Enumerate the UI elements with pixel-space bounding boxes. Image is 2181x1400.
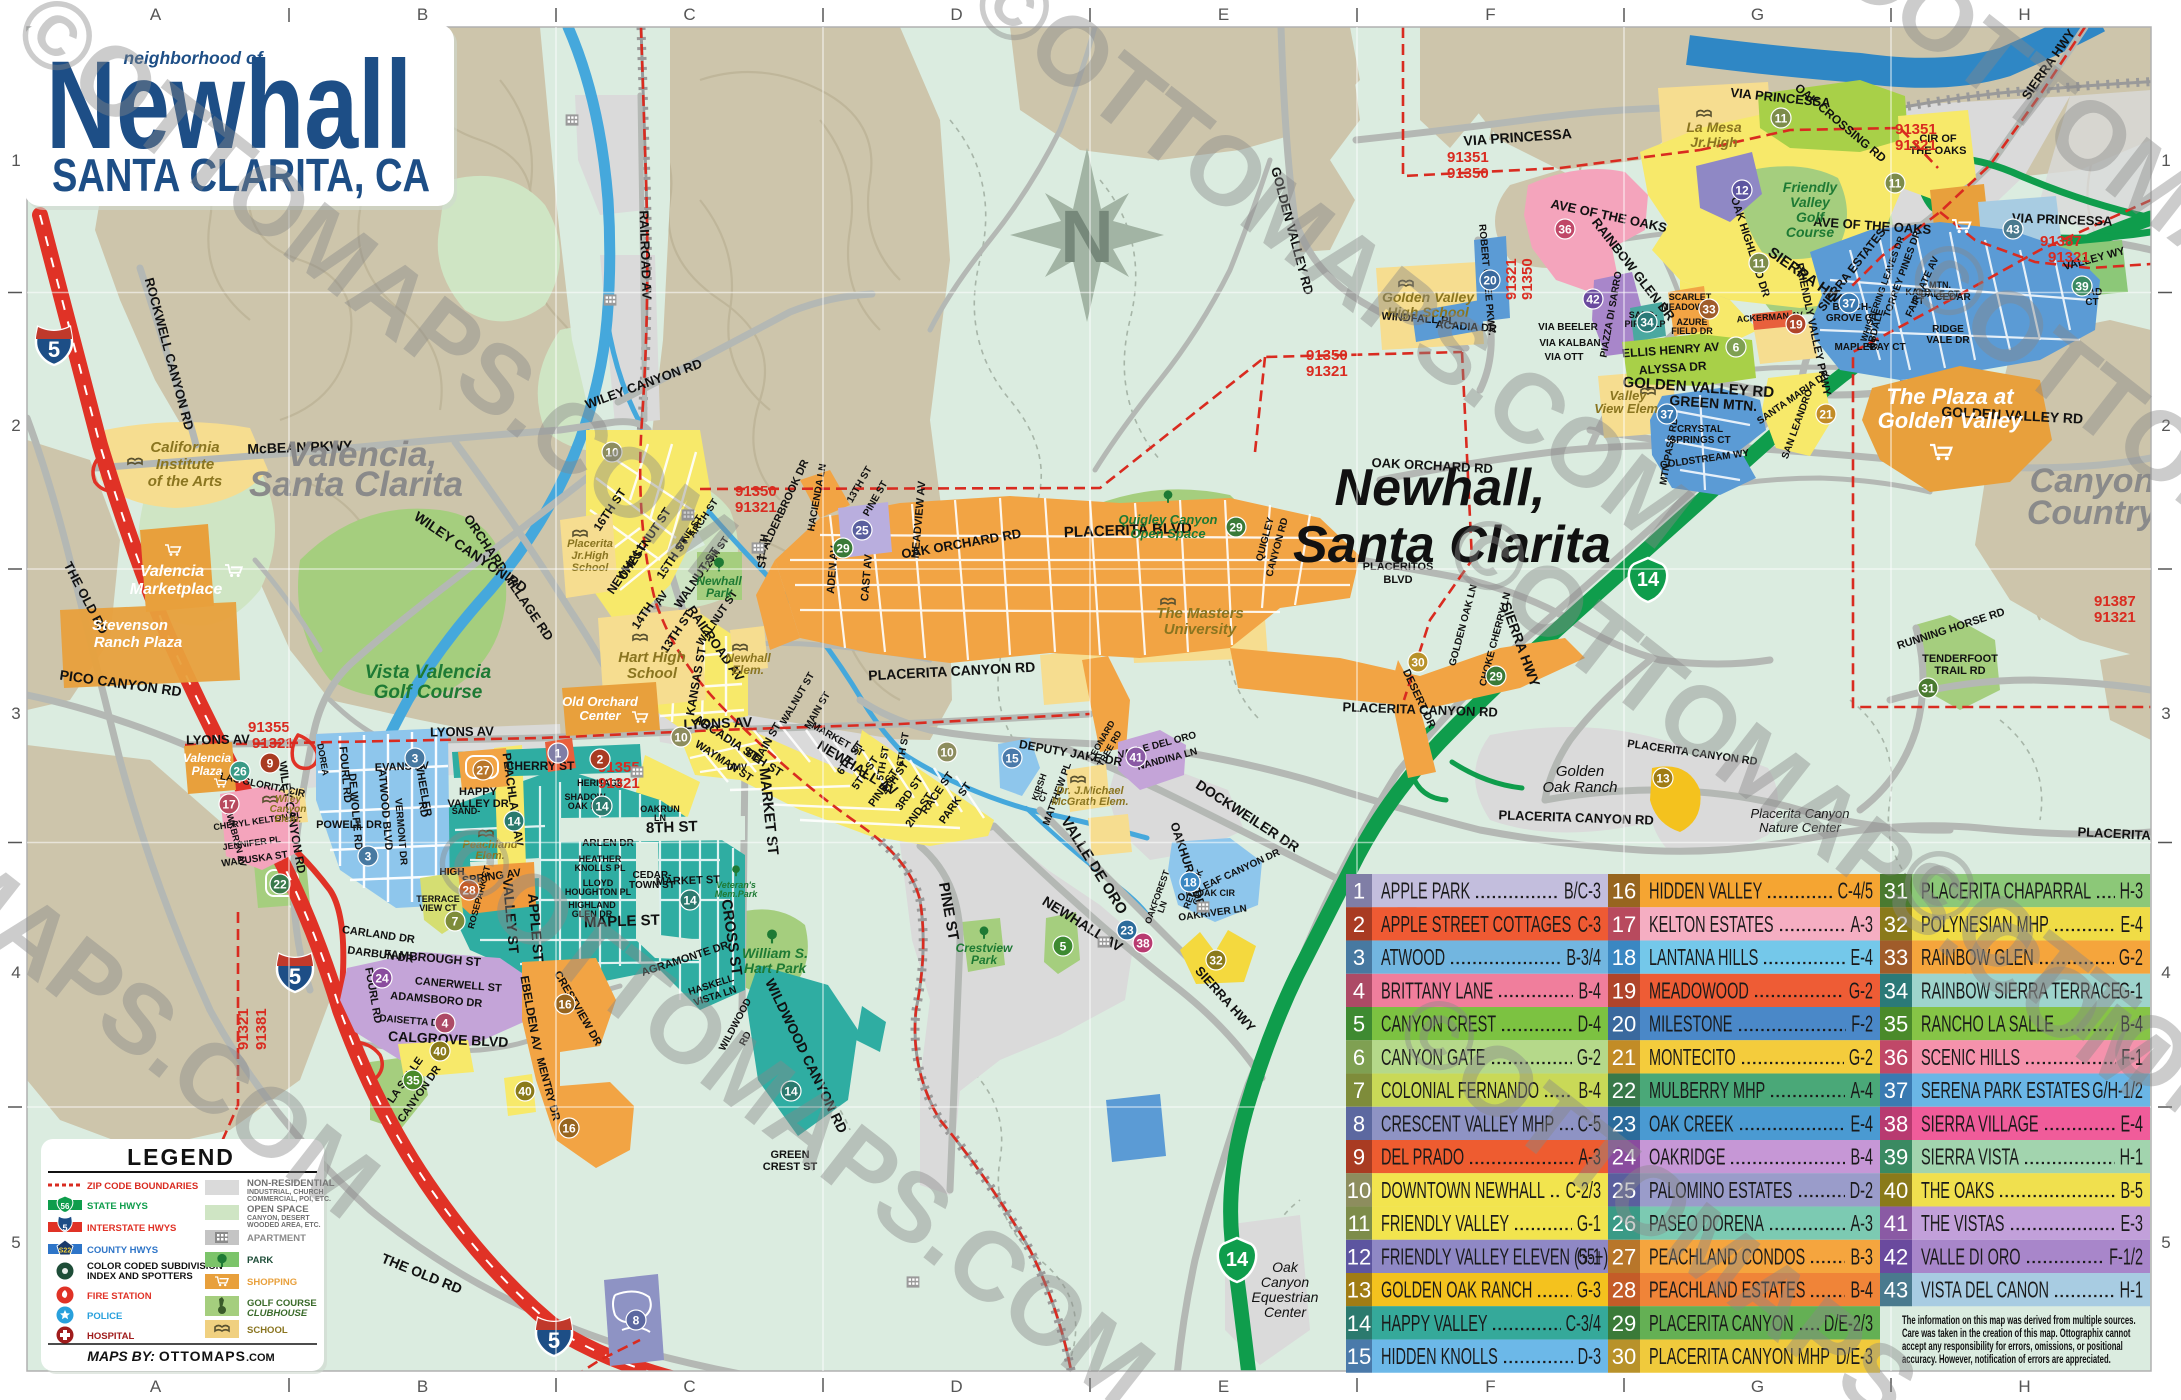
svg-text:accept any responsibility for: accept any responsibility for errors, om…: [1902, 1340, 2123, 1353]
svg-text:Quigley Canyon: Quigley Canyon: [1119, 512, 1218, 527]
svg-text:OAK CREEK: OAK CREEK: [1649, 1112, 1734, 1137]
svg-text:La Mesa: La Mesa: [1686, 119, 1741, 135]
svg-text:Old Orchard: Old Orchard: [562, 694, 639, 709]
svg-text:3: 3: [412, 752, 419, 766]
svg-text:Golf Course: Golf Course: [374, 682, 483, 703]
svg-text:TRAIL RD: TRAIL RD: [1934, 665, 1985, 677]
svg-text:INDEX AND SPOTTERS: INDEX AND SPOTTERS: [87, 1271, 193, 1282]
svg-text:37: 37: [1842, 297, 1856, 311]
svg-text:LYONS AV: LYONS AV: [186, 731, 250, 747]
svg-text:40: 40: [518, 1085, 532, 1099]
svg-text:9: 9: [1353, 1145, 1365, 1170]
svg-text:D-3: D-3: [1578, 1345, 1601, 1370]
svg-text:FIELD DR: FIELD DR: [1671, 326, 1713, 336]
svg-text:of the Arts: of the Arts: [148, 473, 222, 490]
svg-text:10: 10: [1347, 1178, 1371, 1203]
svg-text:91321: 91321: [1306, 363, 1348, 380]
svg-text:42: 42: [1884, 1244, 1908, 1269]
svg-text:36: 36: [1558, 223, 1572, 237]
svg-text:29: 29: [836, 542, 850, 556]
svg-text:91321: 91321: [1895, 137, 1937, 154]
svg-text:27: 27: [476, 764, 490, 778]
svg-text:40: 40: [433, 1045, 447, 1059]
svg-text:25: 25: [855, 524, 869, 538]
svg-text:G-2: G-2: [1849, 1046, 1873, 1071]
svg-text:THE OAKS: THE OAKS: [1921, 1179, 1994, 1204]
svg-text:The Plaza at: The Plaza at: [1886, 384, 2015, 409]
svg-text:3: 3: [2161, 704, 2170, 723]
svg-text:Jr.High: Jr.High: [1690, 134, 1737, 150]
svg-text:HAPPY: HAPPY: [459, 786, 498, 798]
svg-text:Ranch Plaza: Ranch Plaza: [94, 634, 182, 651]
svg-text:Valencia: Valencia: [183, 751, 232, 765]
svg-text:TENDERFOOT: TENDERFOOT: [1922, 653, 1998, 665]
svg-text:Vista Valencia: Vista Valencia: [365, 662, 492, 683]
svg-text:SPRINGS CT: SPRINGS CT: [1669, 435, 1730, 446]
svg-text:10: 10: [940, 746, 954, 760]
svg-text:91321: 91321: [2094, 609, 2136, 626]
svg-text:VIA BEELER: VIA BEELER: [1538, 322, 1598, 333]
svg-text:13: 13: [1656, 772, 1670, 786]
svg-text:University: University: [1164, 621, 1237, 638]
svg-text:5: 5: [1353, 1012, 1365, 1037]
svg-text:32: 32: [1209, 954, 1223, 968]
svg-text:B-4: B-4: [1850, 1145, 1873, 1170]
svg-text:2: 2: [597, 753, 604, 767]
svg-text:LN: LN: [654, 813, 666, 823]
svg-text:MONTECITO: MONTECITO: [1649, 1046, 1736, 1071]
svg-text:B-3: B-3: [1850, 1245, 1873, 1270]
svg-text:Canyon: Canyon: [1261, 1274, 1309, 1290]
svg-text:G: G: [1751, 5, 1764, 24]
svg-text:2: 2: [1353, 912, 1365, 937]
svg-text:Friendly: Friendly: [1783, 179, 1839, 195]
svg-text:4: 4: [2161, 963, 2170, 982]
svg-text:California: California: [150, 439, 219, 456]
svg-text:FRIENDLY VALLEY ELEVEN (55+): FRIENDLY VALLEY ELEVEN (55+): [1381, 1245, 1608, 1270]
svg-text:91350: 91350: [1447, 165, 1489, 182]
svg-text:20: 20: [1483, 274, 1497, 288]
svg-text:13: 13: [1347, 1278, 1371, 1303]
svg-text:POLICE: POLICE: [87, 1311, 122, 1322]
svg-text:5: 5: [2161, 1233, 2170, 1252]
svg-text:STATE HWYS: STATE HWYS: [87, 1201, 148, 1212]
svg-text:3: 3: [365, 850, 372, 864]
svg-text:William S.: William S.: [742, 945, 808, 961]
svg-text:Course: Course: [1786, 224, 1834, 240]
svg-text:F-2: F-2: [1851, 1012, 1873, 1037]
svg-text:7: 7: [1353, 1078, 1365, 1103]
svg-text:33: 33: [1702, 303, 1716, 317]
svg-text:43: 43: [1884, 1278, 1908, 1303]
svg-text:91387: 91387: [2094, 593, 2136, 610]
svg-text:Elem.: Elem.: [275, 814, 302, 825]
svg-text:HIDDEN KNOLLS: HIDDEN KNOLLS: [1381, 1345, 1498, 1370]
svg-text:1: 1: [11, 151, 20, 170]
svg-text:SIERRA VILLAGE: SIERRA VILLAGE: [1921, 1112, 2039, 1137]
svg-text:N: N: [1060, 195, 1113, 278]
svg-text:5: 5: [11, 1233, 20, 1252]
svg-text:14: 14: [683, 894, 697, 908]
svg-text:91321: 91321: [252, 735, 294, 752]
svg-text:TOWN ST: TOWN ST: [629, 880, 675, 891]
svg-text:School: School: [627, 665, 678, 682]
svg-text:5: 5: [48, 337, 60, 362]
svg-text:30: 30: [1411, 656, 1425, 670]
svg-text:Oak: Oak: [1272, 1259, 1299, 1275]
svg-text:34: 34: [1640, 316, 1654, 330]
svg-text:APPLE PARK: APPLE PARK: [1381, 879, 1470, 904]
svg-text:3: 3: [1353, 945, 1365, 970]
svg-text:Country: Country: [2027, 494, 2159, 532]
svg-text:LYONS AV: LYONS AV: [430, 723, 494, 739]
svg-text:Oak Ranch: Oak Ranch: [1542, 779, 1617, 796]
svg-text:16: 16: [1612, 879, 1636, 904]
svg-text:Valley: Valley: [1790, 194, 1831, 210]
svg-text:Marketplace: Marketplace: [130, 581, 223, 598]
svg-text:12: 12: [1347, 1244, 1371, 1269]
svg-text:38: 38: [1884, 1111, 1908, 1136]
svg-text:School: School: [572, 562, 610, 574]
svg-text:5: 5: [1060, 940, 1067, 954]
svg-text:21: 21: [1819, 408, 1833, 422]
svg-text:MULBERRY MHP: MULBERRY MHP: [1649, 1079, 1765, 1104]
svg-text:S22: S22: [59, 1248, 72, 1255]
svg-text:VISTA DEL CANON: VISTA DEL CANON: [1921, 1278, 2049, 1303]
svg-text:2: 2: [11, 416, 20, 435]
svg-text:A-3: A-3: [1850, 1212, 1873, 1237]
svg-text:39: 39: [2075, 280, 2089, 294]
svg-text:B-5: B-5: [2120, 1179, 2143, 1204]
svg-text:WOODED AREA, ETC.: WOODED AREA, ETC.: [247, 1222, 321, 1229]
svg-text:11: 11: [1775, 112, 1788, 126]
svg-text:14: 14: [1637, 569, 1660, 591]
svg-text:26: 26: [233, 765, 247, 779]
svg-text:FRIENDLY VALLEY: FRIENDLY VALLEY: [1381, 1212, 1509, 1237]
svg-text:17: 17: [1612, 912, 1636, 937]
svg-text:5: 5: [289, 964, 301, 989]
svg-text:H-1: H-1: [2120, 1145, 2143, 1170]
svg-text:C-3/4: C-3/4: [1566, 1312, 1602, 1337]
svg-text:42: 42: [1586, 293, 1600, 307]
svg-text:Hart Park: Hart Park: [744, 960, 807, 976]
svg-text:Santa Clarita: Santa Clarita: [249, 465, 463, 504]
svg-text:Center: Center: [579, 708, 621, 723]
svg-text:APARTMENT: APARTMENT: [247, 1233, 306, 1244]
svg-text:Golden Valley: Golden Valley: [1878, 408, 2024, 433]
svg-text:3: 3: [11, 704, 20, 723]
svg-text:91387: 91387: [2040, 233, 2082, 250]
svg-text:91321: 91321: [1503, 258, 1520, 300]
svg-text:SCENIC HILLS: SCENIC HILLS: [1921, 1046, 2020, 1071]
svg-text:B: B: [417, 1377, 428, 1396]
svg-text:37: 37: [1660, 408, 1674, 422]
svg-text:22: 22: [273, 878, 287, 892]
svg-text:The Masters: The Masters: [1156, 605, 1244, 622]
svg-text:Golf: Golf: [1796, 209, 1825, 225]
svg-text:Valencia: Valencia: [140, 563, 204, 580]
svg-text:D: D: [950, 1377, 962, 1396]
svg-text:20: 20: [1612, 1012, 1636, 1037]
svg-text:Jr.High: Jr.High: [571, 550, 609, 562]
svg-text:5: 5: [62, 1223, 67, 1233]
svg-text:10: 10: [674, 731, 688, 745]
svg-text:30: 30: [1612, 1344, 1636, 1369]
svg-text:D-2: D-2: [1850, 1179, 1873, 1204]
svg-text:G: G: [1751, 1377, 1764, 1396]
svg-text:91350: 91350: [1306, 347, 1348, 364]
svg-text:35: 35: [406, 1074, 420, 1088]
svg-text:29: 29: [1612, 1311, 1636, 1336]
svg-text:B: B: [417, 5, 428, 24]
svg-text:LANTANA HILLS: LANTANA HILLS: [1649, 946, 1758, 971]
svg-text:9: 9: [267, 757, 274, 771]
svg-text:4: 4: [442, 1017, 449, 1031]
svg-text:Placerita: Placerita: [567, 538, 613, 550]
svg-text:DOWNTOWN NEWHALL: DOWNTOWN NEWHALL: [1381, 1179, 1545, 1204]
svg-text:56: 56: [61, 1202, 70, 1211]
svg-text:H-3: H-3: [2120, 879, 2143, 904]
svg-text:CRYSTAL: CRYSTAL: [1677, 424, 1723, 435]
svg-text:23: 23: [1120, 924, 1134, 938]
svg-text:E-4: E-4: [1850, 1112, 1873, 1137]
svg-text:COUNTY HWYS: COUNTY HWYS: [87, 1245, 158, 1256]
svg-text:KNOLLS PL: KNOLLS PL: [575, 863, 627, 873]
svg-text:G-2: G-2: [1577, 1046, 1601, 1071]
svg-text:CANYON, DESERT: CANYON, DESERT: [247, 1215, 310, 1222]
svg-text:Open Space: Open Space: [1130, 526, 1205, 541]
svg-text:G-1: G-1: [1577, 1245, 1601, 1270]
svg-text:40: 40: [1884, 1178, 1908, 1203]
svg-text:POWELL DR: POWELL DR: [316, 819, 382, 831]
svg-text:A: A: [150, 1377, 162, 1396]
svg-text:E-4: E-4: [1850, 946, 1873, 971]
svg-text:FIRE STATION: FIRE STATION: [87, 1291, 152, 1302]
svg-text:36: 36: [1884, 1045, 1908, 1070]
svg-text:ATWOOD: ATWOOD: [1381, 946, 1445, 971]
svg-text:12: 12: [1735, 184, 1749, 198]
svg-text:14: 14: [1226, 1249, 1249, 1271]
svg-text:HAPPY VALLEY: HAPPY VALLEY: [1381, 1312, 1488, 1337]
svg-text:Center: Center: [1264, 1304, 1307, 1320]
svg-text:24: 24: [375, 972, 389, 986]
svg-text:18: 18: [1612, 945, 1636, 970]
svg-text:F-1/2: F-1/2: [2109, 1245, 2143, 1270]
svg-text:B/C-3: B/C-3: [1564, 879, 1601, 904]
svg-text:19: 19: [1612, 978, 1636, 1003]
svg-text:4: 4: [1353, 978, 1365, 1003]
svg-text:22: 22: [1612, 1078, 1636, 1103]
svg-text:B-4: B-4: [1578, 979, 1601, 1004]
svg-text:THE VISTAS: THE VISTAS: [1921, 1212, 2004, 1237]
svg-text:34: 34: [1884, 978, 1908, 1003]
svg-text:91350: 91350: [1519, 258, 1536, 300]
svg-text:28: 28: [1612, 1278, 1636, 1303]
svg-text:HIDDEN VALLEY: HIDDEN VALLEY: [1649, 879, 1762, 904]
svg-text:E: E: [1218, 1377, 1229, 1396]
svg-text:ST: ST: [756, 553, 770, 569]
svg-text:ARLEN DR: ARLEN DR: [582, 838, 634, 849]
svg-text:14: 14: [595, 800, 609, 814]
svg-text:Golden: Golden: [1556, 763, 1604, 780]
svg-text:14: 14: [1347, 1311, 1371, 1336]
svg-text:16: 16: [562, 1122, 576, 1136]
svg-text:18: 18: [1183, 876, 1197, 890]
svg-text:C: C: [683, 5, 695, 24]
svg-text:E-4: E-4: [2120, 913, 2143, 938]
svg-text:MILESTONE: MILESTONE: [1649, 1012, 1732, 1037]
svg-text:B-3/4: B-3/4: [1566, 946, 1601, 971]
svg-text:SHOPPING: SHOPPING: [247, 1277, 297, 1288]
svg-text:38: 38: [1136, 937, 1150, 951]
svg-text:BLVD: BLVD: [1383, 574, 1412, 586]
svg-text:Stevenson: Stevenson: [92, 617, 168, 634]
svg-text:29: 29: [1229, 521, 1243, 535]
svg-text:91351: 91351: [1447, 149, 1489, 166]
svg-text:6: 6: [1353, 1045, 1365, 1070]
svg-text:F: F: [1485, 1377, 1495, 1396]
svg-text:F: F: [1485, 5, 1495, 24]
svg-text:Care was taken in the creation: Care was taken in the creation of this m…: [1902, 1327, 2131, 1340]
svg-text:H: H: [2018, 1377, 2030, 1396]
svg-text:VIA KALBAN: VIA KALBAN: [1539, 338, 1600, 349]
svg-text:41: 41: [1129, 751, 1143, 765]
svg-text:39: 39: [1884, 1145, 1908, 1170]
svg-text:Institute: Institute: [156, 456, 214, 473]
svg-text:HOSPITAL: HOSPITAL: [87, 1331, 135, 1342]
svg-text:G-2: G-2: [1849, 979, 1873, 1004]
svg-text:Hart High: Hart High: [618, 649, 686, 666]
svg-text:H-1: H-1: [2120, 1278, 2143, 1303]
svg-text:PARK: PARK: [247, 1255, 273, 1266]
svg-text:G-3: G-3: [1577, 1278, 1601, 1303]
svg-text:A-4: A-4: [1850, 1079, 1873, 1104]
svg-text:Park: Park: [971, 953, 998, 967]
svg-text:Plaza: Plaza: [192, 764, 223, 778]
svg-text:E: E: [1218, 5, 1229, 24]
svg-text:91350: 91350: [735, 483, 777, 500]
svg-text:D-4: D-4: [1578, 1012, 1602, 1037]
svg-text:29: 29: [1489, 670, 1503, 684]
svg-text:21: 21: [1612, 1045, 1636, 1070]
svg-text:19: 19: [1789, 318, 1803, 332]
svg-text:11: 11: [1348, 1211, 1371, 1236]
svg-text:91321: 91321: [2048, 249, 2090, 266]
svg-text:CLUBHOUSE: CLUBHOUSE: [247, 1308, 308, 1319]
svg-text:C-3: C-3: [1578, 913, 1601, 938]
svg-text:11: 11: [1753, 257, 1766, 271]
svg-text:ZIP CODE BOUNDARIES: ZIP CODE BOUNDARIES: [87, 1181, 198, 1192]
svg-text:Equestrian: Equestrian: [1252, 1289, 1319, 1305]
svg-text:INTERSTATE HWYS: INTERSTATE HWYS: [87, 1223, 176, 1234]
svg-text:KELTON ESTATES: KELTON ESTATES: [1649, 913, 1774, 938]
svg-text:CT: CT: [2085, 297, 2098, 308]
svg-text:SIERRA VISTA: SIERRA VISTA: [1921, 1145, 2019, 1170]
svg-text:APPLE STREET COTTAGES: APPLE STREET COTTAGES: [1381, 913, 1571, 938]
svg-text:91351: 91351: [1895, 121, 1937, 138]
svg-text:SERENA PARK ESTATES: SERENA PARK ESTATES: [1921, 1079, 2090, 1104]
svg-text:6: 6: [1733, 341, 1740, 355]
svg-text:8: 8: [633, 1314, 640, 1328]
svg-text:5: 5: [548, 1328, 560, 1353]
svg-text:8: 8: [1353, 1111, 1365, 1136]
svg-text:DEL PRADO: DEL PRADO: [1381, 1145, 1464, 1170]
svg-text:Park: Park: [706, 586, 733, 600]
svg-text:91355: 91355: [248, 719, 290, 736]
svg-text:MEADOWOOD: MEADOWOOD: [1649, 979, 1749, 1004]
svg-text:15: 15: [1005, 752, 1019, 766]
svg-text:GOLDEN OAK RANCH: GOLDEN OAK RANCH: [1381, 1278, 1532, 1303]
svg-text:43: 43: [2006, 223, 2020, 237]
svg-text:E-3: E-3: [2120, 1212, 2143, 1237]
svg-text:Mem.Park: Mem.Park: [715, 889, 759, 899]
svg-text:1: 1: [1353, 879, 1365, 904]
svg-text:DMV: DMV: [727, 762, 747, 772]
svg-text:15: 15: [1347, 1344, 1371, 1369]
svg-text:VALLE DI ORO: VALLE DI ORO: [1921, 1245, 2021, 1270]
svg-text:41: 41: [1884, 1211, 1908, 1236]
svg-text:The information on this map wa: The information on this map was derived …: [1902, 1314, 2136, 1327]
svg-text:A: A: [150, 5, 162, 24]
svg-text:C: C: [683, 1377, 695, 1396]
svg-text:17: 17: [222, 798, 236, 812]
svg-text:35: 35: [1884, 1012, 1908, 1037]
svg-text:31: 31: [1921, 682, 1935, 696]
svg-text:37: 37: [1884, 1078, 1908, 1103]
svg-text:Elem.: Elem.: [732, 663, 764, 677]
svg-text:RAILROAD AV: RAILROAD AV: [636, 210, 654, 300]
svg-text:SCHOOL: SCHOOL: [247, 1325, 288, 1336]
